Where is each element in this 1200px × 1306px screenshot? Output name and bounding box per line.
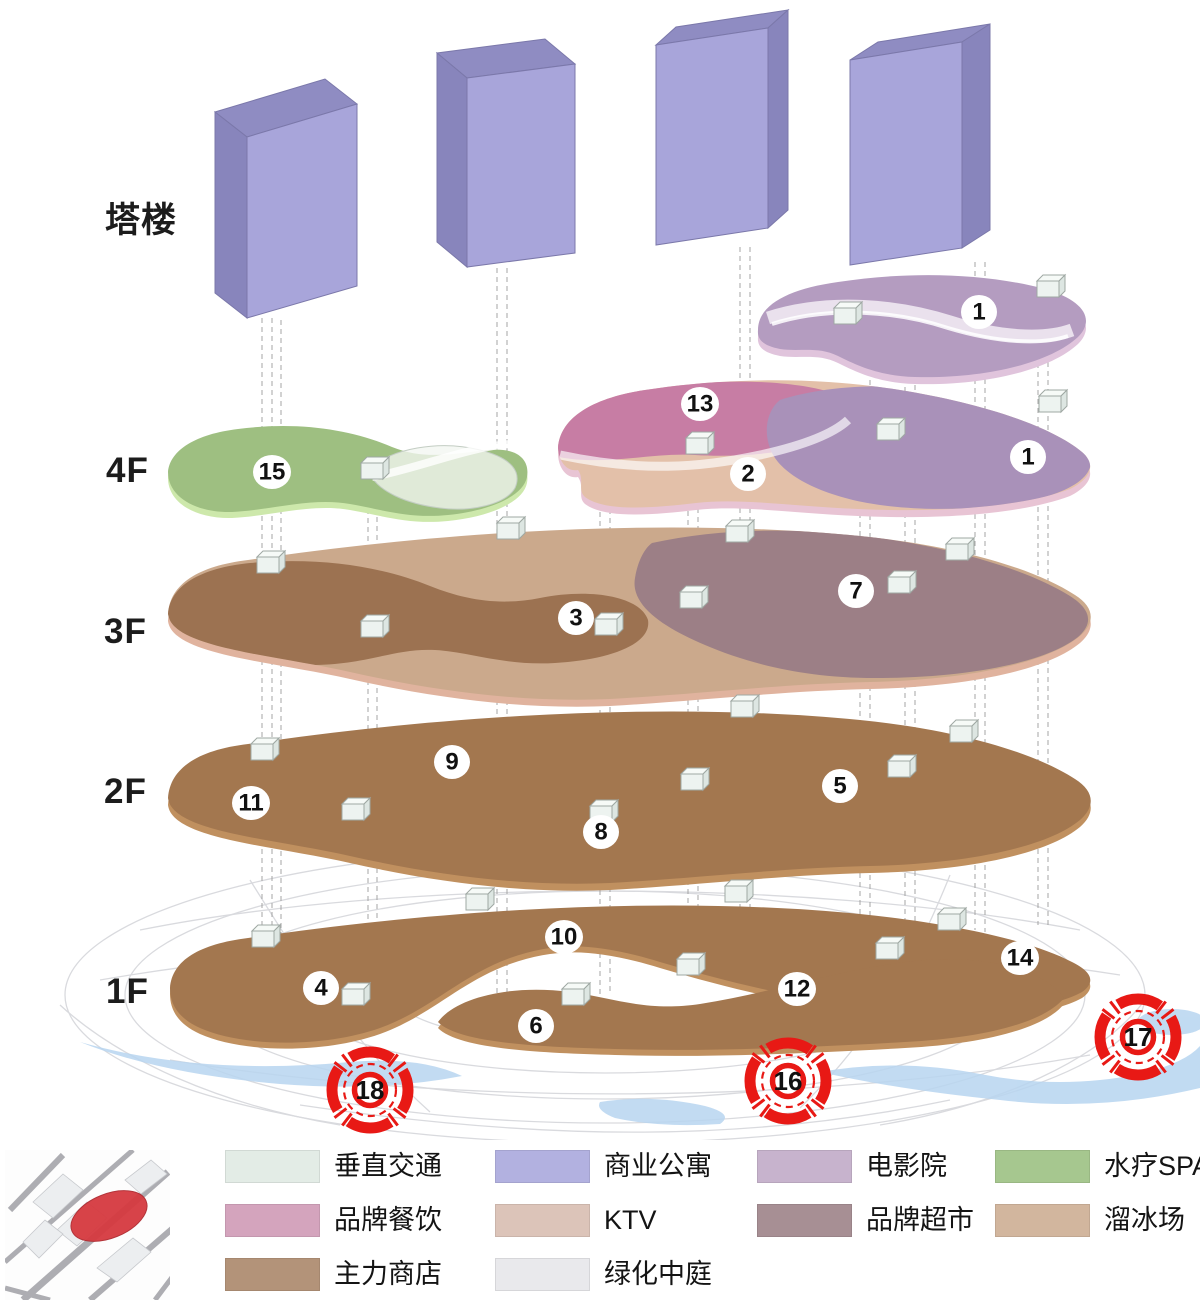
legend-item-anchor-store: 主力商店 (225, 1258, 442, 1291)
floor-plate-4f-mixed (550, 380, 1091, 517)
legend-swatch (757, 1150, 852, 1183)
tower-3 (656, 10, 788, 245)
glass-cube (677, 953, 705, 975)
svg-text:5: 5 (833, 773, 846, 800)
glass-cube (497, 517, 525, 539)
glass-cube (361, 457, 389, 479)
glass-cube (252, 925, 280, 947)
exploded-floor-diagram-page: 1 13 2 1 15 3 7 9 11 8 5 10 4 14 12 6 18 (0, 0, 1200, 1306)
glass-cube (834, 302, 862, 324)
legend-label: 绿化中庭 (604, 1259, 712, 1290)
svg-text:10: 10 (551, 924, 578, 951)
glass-cube (726, 520, 754, 542)
legend-label: KTV (604, 1205, 657, 1236)
glass-cube (686, 432, 714, 454)
glass-cube (342, 983, 370, 1005)
legend-label: 电影院 (866, 1151, 947, 1182)
unit-badge-6: 6 (518, 1009, 554, 1043)
glass-cube (257, 551, 285, 573)
legend-label: 商业公寓 (604, 1151, 712, 1182)
legend-swatch (225, 1204, 320, 1237)
svg-text:1: 1 (972, 299, 985, 326)
svg-text:9: 9 (445, 749, 458, 776)
legend-item-brand-supermarket: 品牌超市 (757, 1204, 974, 1237)
legend-item-cinema: 电影院 (757, 1150, 947, 1183)
glass-cube (251, 738, 279, 760)
svg-text:8: 8 (594, 819, 607, 846)
unit-badge-1-upper: 1 (961, 295, 997, 329)
glass-cube (938, 908, 966, 930)
glass-cube (361, 615, 389, 637)
svg-text:17: 17 (1124, 1022, 1153, 1052)
legend-item-spa: 水疗SPA (995, 1150, 1200, 1183)
legend-label: 溜冰场 (1104, 1205, 1185, 1236)
legend-swatch (757, 1204, 852, 1237)
unit-badge-9: 9 (434, 745, 470, 779)
glass-cube (1037, 275, 1065, 297)
svg-text:11: 11 (238, 790, 263, 817)
floor-label-3f: 3F (104, 612, 147, 652)
legend-item-vertical-circulation: 垂直交通 (225, 1150, 442, 1183)
svg-text:3: 3 (569, 605, 582, 632)
glass-cube (595, 613, 623, 635)
glass-cube (680, 586, 708, 608)
tower-4 (850, 24, 990, 265)
legend-label: 品牌餐饮 (334, 1205, 442, 1236)
svg-text:16: 16 (774, 1066, 803, 1096)
glass-cube (466, 888, 494, 910)
svg-text:2: 2 (741, 461, 754, 488)
legend-swatch (225, 1150, 320, 1183)
legend-item-brand-dining: 品牌餐饮 (225, 1204, 442, 1237)
unit-badge-8: 8 (583, 815, 619, 849)
unit-badge-2: 2 (730, 457, 766, 491)
glass-cube (888, 755, 916, 777)
unit-badge-11: 11 (232, 786, 270, 820)
legend-swatch (225, 1258, 320, 1291)
glass-cube (877, 418, 905, 440)
svg-text:14: 14 (1007, 945, 1034, 972)
unit-badge-1-lower: 1 (1010, 440, 1046, 474)
floor-label-1f: 1F (106, 972, 149, 1012)
legend-swatch (495, 1258, 590, 1291)
legend-swatch (995, 1204, 1090, 1237)
unit-badge-13: 13 (681, 387, 719, 421)
floor-label-tower: 塔楼 (105, 192, 177, 243)
glass-cube (562, 983, 590, 1005)
unit-badge-10: 10 (545, 920, 583, 954)
legend-swatch (495, 1150, 590, 1183)
glass-cube (950, 720, 978, 742)
svg-text:12: 12 (784, 976, 811, 1003)
legend-item-ice-rink: 溜冰场 (995, 1204, 1185, 1237)
unit-badge-5: 5 (822, 769, 858, 803)
floor-label-2f: 2F (104, 772, 147, 812)
svg-text:13: 13 (687, 391, 714, 418)
legend-item-green-atrium: 绿化中庭 (495, 1258, 712, 1291)
legend-label: 水疗SPA (1104, 1151, 1200, 1182)
glass-cube (888, 571, 916, 593)
legend-item-commercial-apartment: 商业公寓 (495, 1150, 712, 1183)
glass-cube (342, 798, 370, 820)
svg-text:1: 1 (1021, 444, 1034, 471)
svg-text:7: 7 (849, 578, 862, 605)
unit-badge-14: 14 (1001, 941, 1039, 975)
glass-cube (731, 695, 759, 717)
unit-badge-15: 15 (253, 455, 291, 489)
glass-cube (946, 538, 974, 560)
glass-cube (725, 880, 753, 902)
legend-swatch (995, 1150, 1090, 1183)
unit-badge-7: 7 (838, 574, 874, 608)
glass-cube (681, 768, 709, 790)
legend-label: 品牌超市 (866, 1205, 974, 1236)
site-map-thumbnail (5, 1150, 170, 1300)
svg-text:6: 6 (529, 1013, 542, 1040)
unit-badge-3: 3 (558, 601, 594, 635)
tower-1 (215, 79, 357, 318)
legend-label: 主力商店 (334, 1259, 442, 1290)
diagram-canvas: 1 13 2 1 15 3 7 9 11 8 5 10 4 14 12 6 18 (0, 0, 1200, 1140)
glass-cube (1039, 390, 1067, 412)
svg-text:15: 15 (259, 459, 286, 486)
legend-swatch (495, 1204, 590, 1237)
legend-item-ktv: KTV (495, 1204, 657, 1237)
svg-text:18: 18 (356, 1075, 385, 1105)
floor-plate-4f-spa (168, 426, 527, 522)
unit-badge-4: 4 (303, 971, 339, 1005)
floor-label-4f: 4F (106, 451, 149, 491)
unit-badge-12: 12 (778, 972, 816, 1006)
svg-text:4: 4 (314, 975, 328, 1002)
tower-2 (437, 39, 575, 267)
glass-cube (876, 937, 904, 959)
legend-label: 垂直交通 (334, 1151, 442, 1182)
legend: 垂直交通 品牌餐饮 主力商店 商业公寓 KTV 绿化中庭 电影院 品牌超市 水疗… (0, 1140, 1200, 1306)
